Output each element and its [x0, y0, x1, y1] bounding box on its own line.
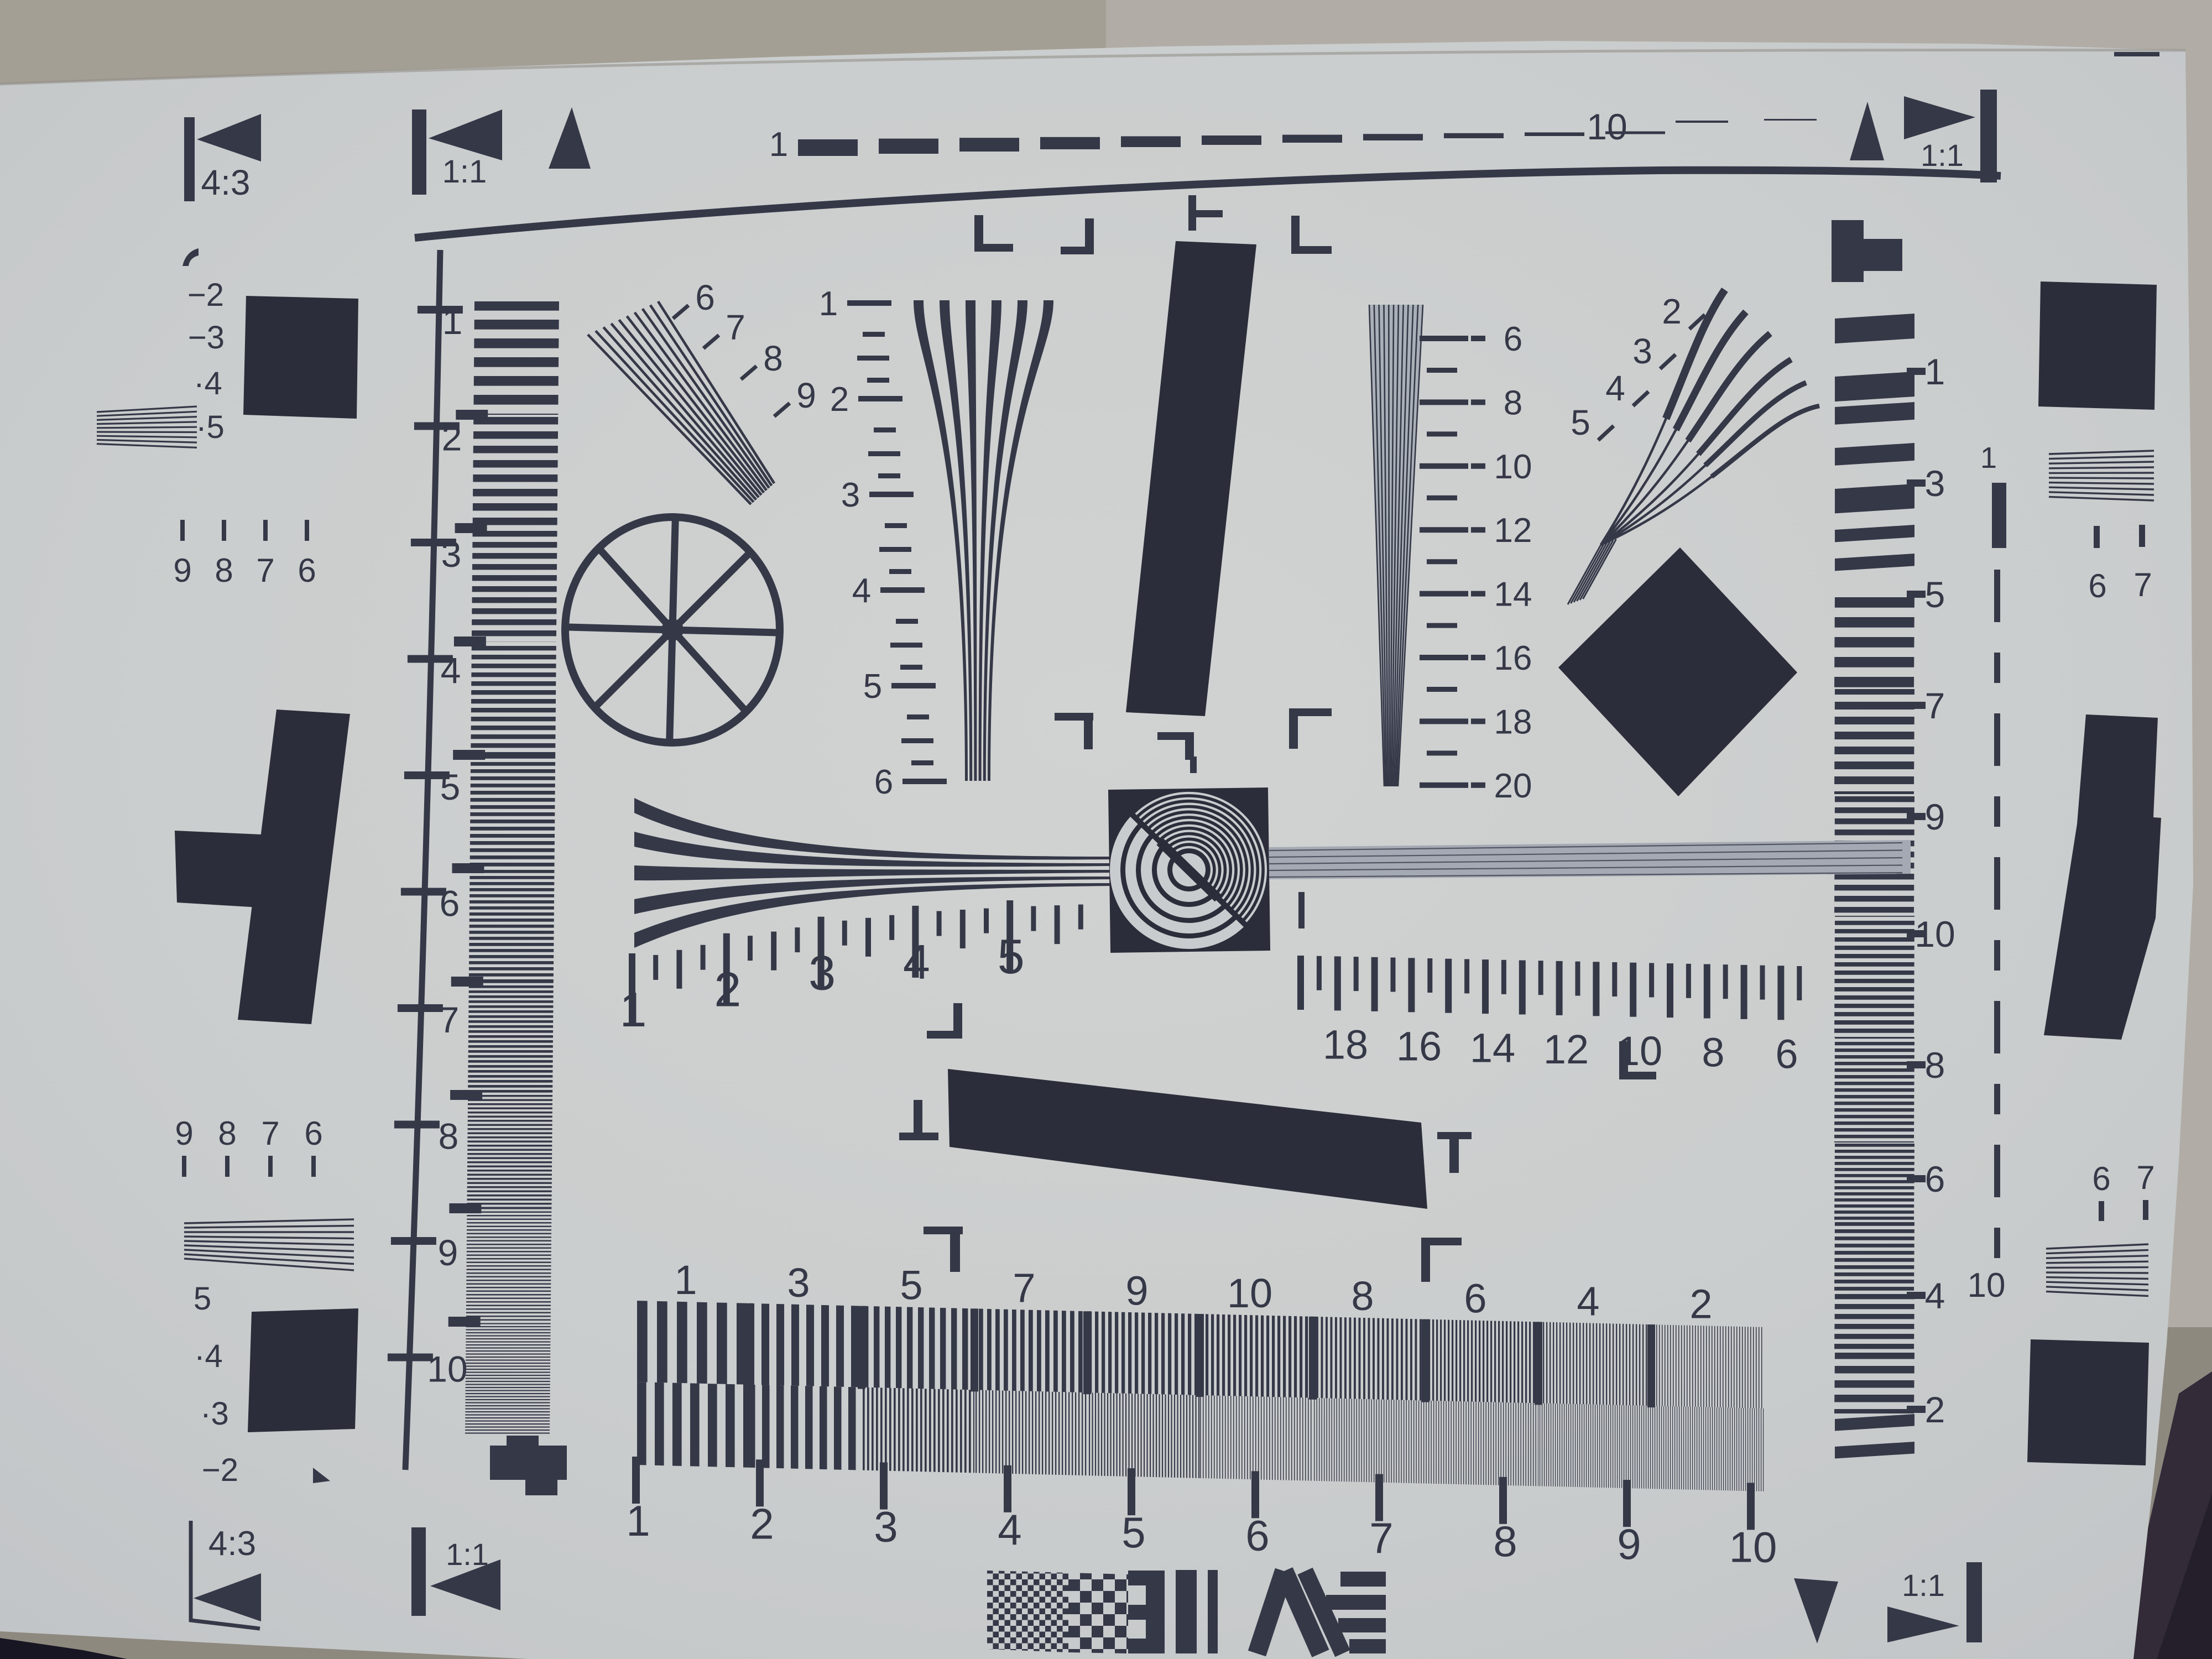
svg-text:6: 6	[1245, 1511, 1269, 1559]
svg-text:6: 6	[2088, 567, 2106, 604]
svg-text:16: 16	[1396, 1024, 1442, 1070]
svg-text:6: 6	[1504, 320, 1522, 358]
svg-text:1:1: 1:1	[446, 1537, 489, 1572]
svg-text:2: 2	[1689, 1281, 1712, 1327]
svg-text:6: 6	[874, 763, 893, 801]
svg-text:1: 1	[1925, 351, 1945, 392]
svg-text:2: 2	[1662, 291, 1682, 331]
svg-text:1: 1	[626, 1496, 650, 1545]
svg-text:9: 9	[1125, 1267, 1148, 1313]
svg-text:8: 8	[218, 1115, 236, 1152]
svg-text:4: 4	[903, 935, 930, 989]
svg-text:8: 8	[439, 1116, 459, 1157]
svg-text:18: 18	[1494, 703, 1532, 741]
svg-text:10: 10	[1587, 106, 1627, 147]
svg-text:8: 8	[1493, 1517, 1517, 1566]
svg-text:7: 7	[726, 307, 745, 347]
svg-text:5: 5	[194, 1281, 211, 1317]
svg-text:7: 7	[1925, 685, 1945, 726]
svg-text:3: 3	[787, 1260, 810, 1306]
svg-text:14: 14	[1494, 576, 1532, 614]
svg-text:8: 8	[1925, 1045, 1945, 1086]
svg-text:4:3: 4:3	[201, 163, 251, 202]
svg-text:3: 3	[1632, 331, 1652, 371]
svg-text:1: 1	[620, 982, 647, 1037]
svg-text:·3: ·3	[200, 1396, 229, 1432]
svg-text:1:1: 1:1	[1921, 138, 1964, 173]
svg-text:4: 4	[1605, 368, 1625, 408]
svg-text:9: 9	[1925, 796, 1945, 837]
svg-text:16: 16	[1494, 639, 1532, 677]
svg-text:2: 2	[750, 1499, 774, 1548]
svg-text:1: 1	[674, 1257, 697, 1303]
svg-text:6: 6	[2092, 1160, 2110, 1197]
svg-text:9: 9	[173, 552, 191, 589]
svg-text:10: 10	[427, 1349, 467, 1390]
svg-text:4: 4	[852, 572, 871, 610]
svg-text:3: 3	[874, 1503, 898, 1551]
svg-text:5: 5	[440, 766, 461, 807]
svg-text:7: 7	[261, 1115, 279, 1152]
svg-text:8: 8	[1504, 384, 1522, 422]
svg-text:·4: ·4	[194, 1338, 223, 1374]
svg-text:−3: −3	[188, 320, 225, 356]
svg-text:10: 10	[1968, 1266, 2006, 1305]
svg-text:20: 20	[1494, 767, 1532, 805]
svg-text:6: 6	[440, 883, 460, 924]
svg-text:7: 7	[2136, 1159, 2154, 1196]
svg-text:18: 18	[1323, 1022, 1368, 1068]
svg-text:10: 10	[1729, 1522, 1777, 1571]
svg-text:12: 12	[1543, 1026, 1589, 1072]
svg-text:3: 3	[841, 476, 860, 514]
svg-text:6: 6	[695, 278, 715, 317]
svg-text:4: 4	[1577, 1279, 1599, 1324]
svg-text:10: 10	[1227, 1270, 1272, 1316]
svg-text:14: 14	[1470, 1025, 1515, 1071]
svg-text:1:1: 1:1	[1902, 1568, 1945, 1603]
svg-text:5: 5	[998, 929, 1025, 984]
svg-text:3: 3	[441, 534, 462, 575]
svg-text:9: 9	[438, 1232, 458, 1273]
svg-text:2: 2	[830, 380, 849, 419]
svg-text:3: 3	[1925, 463, 1945, 504]
svg-text:2: 2	[1925, 1389, 1945, 1430]
svg-text:5: 5	[1571, 403, 1590, 442]
svg-text:5: 5	[1925, 574, 1945, 615]
svg-text:7: 7	[256, 552, 274, 589]
svg-text:1: 1	[1980, 441, 1997, 474]
svg-text:9: 9	[1617, 1520, 1641, 1568]
svg-text:1: 1	[442, 301, 463, 342]
svg-text:−2: −2	[187, 277, 224, 313]
svg-text:−2: −2	[202, 1452, 238, 1488]
svg-text:9: 9	[796, 375, 816, 415]
svg-text:8: 8	[763, 338, 783, 378]
svg-text:8: 8	[215, 552, 233, 589]
svg-text:5: 5	[1121, 1508, 1145, 1557]
svg-text:7: 7	[1369, 1514, 1393, 1563]
svg-text:7: 7	[439, 999, 460, 1040]
svg-text:2: 2	[714, 962, 741, 1017]
svg-text:6: 6	[1775, 1031, 1798, 1077]
svg-text:5: 5	[900, 1262, 922, 1308]
svg-text:9: 9	[175, 1115, 193, 1152]
svg-text:5: 5	[863, 667, 882, 706]
svg-text:1: 1	[819, 285, 838, 323]
svg-text:12: 12	[1494, 512, 1532, 550]
svg-text:6: 6	[1925, 1159, 1945, 1199]
svg-text:10: 10	[1494, 448, 1532, 486]
svg-text:4: 4	[998, 1505, 1021, 1554]
svg-text:3: 3	[808, 946, 836, 1000]
svg-text:8: 8	[1351, 1273, 1374, 1319]
svg-text:6: 6	[298, 552, 316, 589]
svg-text:4: 4	[441, 650, 461, 691]
svg-text:7: 7	[2133, 566, 2152, 603]
svg-text:2: 2	[442, 418, 462, 458]
svg-text:·5: ·5	[196, 409, 225, 445]
svg-text:6: 6	[304, 1115, 322, 1152]
svg-text:4:3: 4:3	[208, 1525, 256, 1563]
svg-text:4: 4	[1925, 1275, 1945, 1316]
svg-text:8: 8	[1702, 1030, 1724, 1076]
svg-text:7: 7	[1013, 1265, 1035, 1311]
svg-text:·4: ·4	[194, 366, 222, 401]
svg-text:1:1: 1:1	[442, 154, 487, 190]
svg-text:1: 1	[769, 126, 788, 164]
svg-text:6: 6	[1464, 1276, 1486, 1322]
